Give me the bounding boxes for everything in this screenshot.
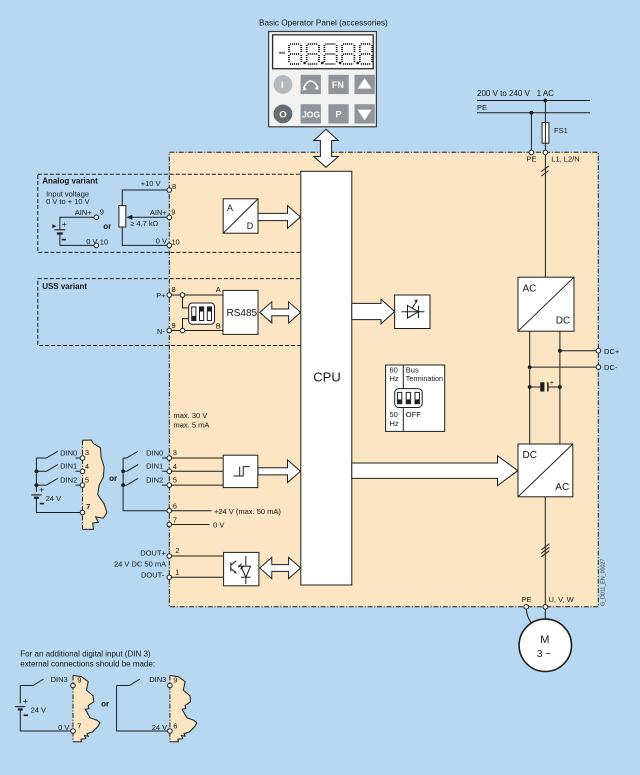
svg-text:9: 9	[171, 208, 175, 217]
svg-text:max. 30 V: max. 30 V	[174, 411, 208, 420]
svg-text:200 V to 240 V 1 AC: 200 V to 240 V 1 AC	[477, 89, 554, 98]
svg-text:or: or	[103, 222, 111, 231]
svg-text:9: 9	[173, 675, 177, 684]
svg-text:I: I	[281, 80, 284, 91]
svg-text:max. 5 mA: max. 5 mA	[174, 420, 210, 429]
svg-text:U, V, W: U, V, W	[549, 595, 575, 604]
svg-text:4: 4	[173, 462, 177, 471]
svg-text:or: or	[109, 474, 117, 483]
svg-text:DOUT+: DOUT+	[140, 548, 166, 557]
svg-text:PE: PE	[526, 155, 536, 164]
svg-text:DIN0: DIN0	[60, 448, 77, 457]
svg-text:+: +	[23, 696, 28, 706]
svg-text:+: +	[550, 380, 554, 387]
svg-text:24 V DC 50 mA: 24 V DC 50 mA	[114, 560, 166, 569]
svg-text:O: O	[279, 109, 286, 120]
svg-text:7: 7	[86, 502, 90, 511]
svg-text:AIN+: AIN+	[150, 208, 168, 217]
svg-text:Analog variant: Analog variant	[42, 176, 98, 185]
svg-text:24 V: 24 V	[31, 706, 46, 715]
svg-text:8: 8	[172, 285, 176, 294]
svg-text:5: 5	[173, 476, 177, 485]
svg-text:24 V: 24 V	[46, 494, 61, 503]
svg-text:6: 6	[173, 721, 177, 730]
svg-text:+: +	[39, 484, 44, 494]
svg-text:Hz: Hz	[390, 374, 399, 383]
svg-text:AC: AC	[555, 482, 569, 493]
svg-text:DC: DC	[523, 450, 537, 461]
svg-text:FN: FN	[332, 80, 344, 90]
svg-text:For an additional digital inpu: For an additional digital input (DIN 3)	[20, 650, 151, 659]
svg-text:USS variant: USS variant	[42, 282, 87, 291]
svg-text:2: 2	[175, 546, 179, 555]
svg-text:RS485: RS485	[227, 308, 258, 319]
svg-text:L1, L2/N: L1, L2/N	[551, 155, 579, 164]
svg-text:10: 10	[100, 237, 108, 246]
svg-text:7: 7	[173, 515, 177, 524]
svg-text:8: 8	[172, 182, 176, 191]
svg-text:50: 50	[390, 410, 398, 419]
svg-text:1: 1	[175, 568, 179, 577]
svg-text:DIN0: DIN0	[146, 448, 163, 457]
svg-text:FS1: FS1	[554, 126, 568, 135]
svg-text:3 ~: 3 ~	[537, 649, 551, 660]
svg-text:P: P	[336, 110, 342, 120]
svg-text:DC-: DC-	[604, 363, 618, 372]
svg-text:0 V to + 10 V: 0 V to + 10 V	[46, 197, 90, 206]
svg-text:Basic Operator Panel (accessor: Basic Operator Panel (accessories)	[259, 19, 388, 28]
svg-text:AIN+: AIN+	[75, 208, 93, 217]
svg-text:24 V: 24 V	[152, 723, 167, 732]
svg-text:PE: PE	[522, 595, 532, 604]
svg-text:0 V: 0 V	[58, 723, 69, 732]
svg-text:A: A	[216, 285, 221, 294]
svg-text:5: 5	[85, 476, 89, 485]
svg-text:external connections should be: external connections should be made:	[20, 660, 155, 669]
svg-text:DIN3: DIN3	[51, 675, 68, 684]
svg-text:0 V: 0 V	[156, 237, 167, 246]
svg-text:or: or	[101, 699, 109, 708]
svg-text:Hz: Hz	[390, 419, 399, 428]
svg-text:DOUT-: DOUT-	[141, 571, 165, 580]
svg-text:Termination: Termination	[406, 374, 443, 383]
svg-text:DIN1: DIN1	[146, 462, 163, 471]
svg-text:9: 9	[172, 321, 176, 330]
svg-text:JOG: JOG	[302, 110, 320, 120]
svg-text:M: M	[540, 634, 549, 646]
svg-text:9: 9	[77, 675, 81, 684]
svg-text:N-: N-	[157, 327, 165, 336]
svg-text:DIN1: DIN1	[60, 462, 77, 471]
svg-text:6: 6	[173, 501, 177, 510]
svg-text:0 V: 0 V	[213, 520, 224, 529]
svg-text:OFF: OFF	[406, 410, 421, 419]
svg-text:G_D011_EN_00027: G_D011_EN_00027	[601, 559, 607, 606]
svg-text:CPU: CPU	[313, 369, 340, 384]
svg-text:DC: DC	[556, 316, 570, 327]
svg-text:B: B	[216, 322, 221, 331]
svg-text:DC+: DC+	[604, 347, 620, 356]
svg-text:P+: P+	[156, 291, 166, 300]
svg-text:≥ 4,7 kΩ: ≥ 4,7 kΩ	[130, 219, 158, 228]
svg-text:DIN3: DIN3	[149, 675, 166, 684]
svg-text:DIN2: DIN2	[60, 476, 77, 485]
svg-text:D: D	[247, 221, 254, 231]
svg-text:+10 V: +10 V	[141, 179, 161, 188]
svg-text:9: 9	[100, 208, 104, 217]
svg-text:3: 3	[85, 448, 89, 457]
svg-text:PE: PE	[477, 103, 487, 112]
svg-text:DIN2: DIN2	[146, 476, 163, 485]
svg-text:+24 V (max. 50 mA): +24 V (max. 50 mA)	[214, 507, 281, 516]
svg-text:3: 3	[173, 448, 177, 457]
svg-text:10: 10	[171, 237, 179, 246]
svg-text:0 V: 0 V	[86, 237, 97, 246]
svg-text:4: 4	[85, 462, 89, 471]
svg-text:A: A	[227, 203, 233, 213]
svg-text:7: 7	[77, 721, 81, 730]
svg-text:+: +	[62, 219, 67, 229]
svg-text:AC: AC	[523, 284, 537, 295]
